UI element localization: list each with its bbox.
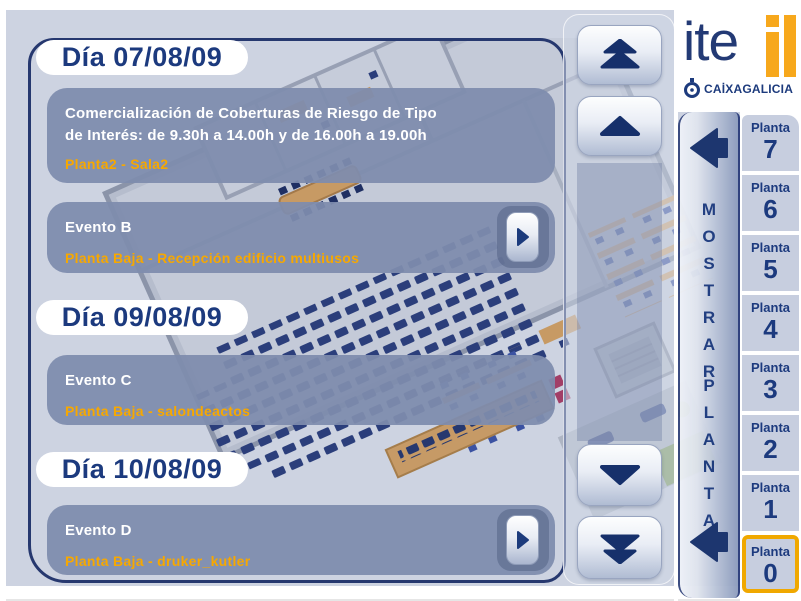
event-location: Planta2 - Sala2	[65, 156, 555, 172]
floor-button-0[interactable]: Planta 0	[742, 535, 799, 593]
left-margin	[0, 0, 6, 601]
ite-logo: ite	[683, 6, 738, 76]
event-item: Comercialización de Coberturas de Riesgo…	[47, 88, 555, 183]
event-detail-button[interactable]	[506, 515, 539, 565]
floor-button-6[interactable]: Planta 6	[742, 175, 799, 231]
event-detail-button[interactable]	[506, 212, 539, 262]
event-detail-well	[497, 509, 549, 571]
event-location: Planta Baja - Recepción edificio multius…	[65, 250, 555, 266]
itel-yellow-mark-icon	[766, 15, 796, 79]
scroll-page-down-button[interactable]	[577, 516, 662, 579]
chevron-down-icon	[597, 463, 643, 487]
arrow-left-icon	[688, 126, 730, 175]
show-floor-word-mostrar: MOSTRAR	[702, 196, 716, 385]
event-item: Evento C Planta Baja - salondeactos	[47, 355, 555, 425]
chevron-up-icon	[597, 114, 643, 138]
event-location: Planta Baja - salondeactos	[65, 403, 555, 419]
show-floor-word-planta: PLANTA	[703, 372, 715, 534]
scroll-track[interactable]	[577, 163, 662, 441]
chevron-right-icon	[516, 227, 530, 247]
show-floor-bar[interactable]: MOSTRAR PLANTA	[678, 112, 740, 598]
event-title: Evento D	[65, 520, 555, 542]
day-header: Día 09/08/09	[36, 300, 248, 335]
event-title: Evento B	[65, 217, 555, 239]
event-list-scrollbar	[563, 14, 675, 585]
double-chevron-up-icon	[597, 39, 643, 71]
caixagalicia-brand: CAİXAGALICIA	[704, 82, 793, 96]
floor-button-4[interactable]: Planta 4	[742, 295, 799, 351]
event-title-line2: de Interés: de 9.30h a 14.00h y de 16.00…	[65, 125, 555, 147]
event-item: Evento B Planta Baja - Recepción edifici…	[47, 202, 555, 273]
floor-button-1[interactable]: Planta 1	[742, 475, 799, 531]
scroll-down-button[interactable]	[577, 444, 662, 506]
scroll-page-up-button[interactable]	[577, 25, 662, 85]
caixa-swirl-icon	[683, 78, 701, 100]
double-chevron-down-icon	[597, 532, 643, 564]
event-location: Planta Baja - druker_kutler	[65, 553, 555, 569]
floor-button-5[interactable]: Planta 5	[742, 235, 799, 291]
day-header: Día 07/08/09	[36, 40, 248, 75]
chevron-right-icon	[516, 530, 530, 550]
top-margin	[0, 0, 680, 10]
event-title: Evento C	[65, 370, 555, 392]
event-title: Comercialización de Coberturas de Riesgo…	[65, 103, 555, 125]
kiosk-screen: Día 07/08/09 Comercialización de Cobertu…	[0, 0, 801, 601]
logo-area: ite CAİXAGALICIA	[676, 0, 801, 112]
arrow-left-icon	[688, 520, 730, 569]
event-detail-well	[497, 206, 549, 268]
floor-button-3[interactable]: Planta 3	[742, 355, 799, 411]
day-header: Día 10/08/09	[36, 452, 248, 487]
floor-button-7[interactable]: Planta 7	[742, 115, 799, 171]
floor-button-2[interactable]: Planta 2	[742, 415, 799, 471]
scroll-up-button[interactable]	[577, 96, 662, 156]
event-item: Evento D Planta Baja - druker_kutler	[47, 505, 555, 575]
